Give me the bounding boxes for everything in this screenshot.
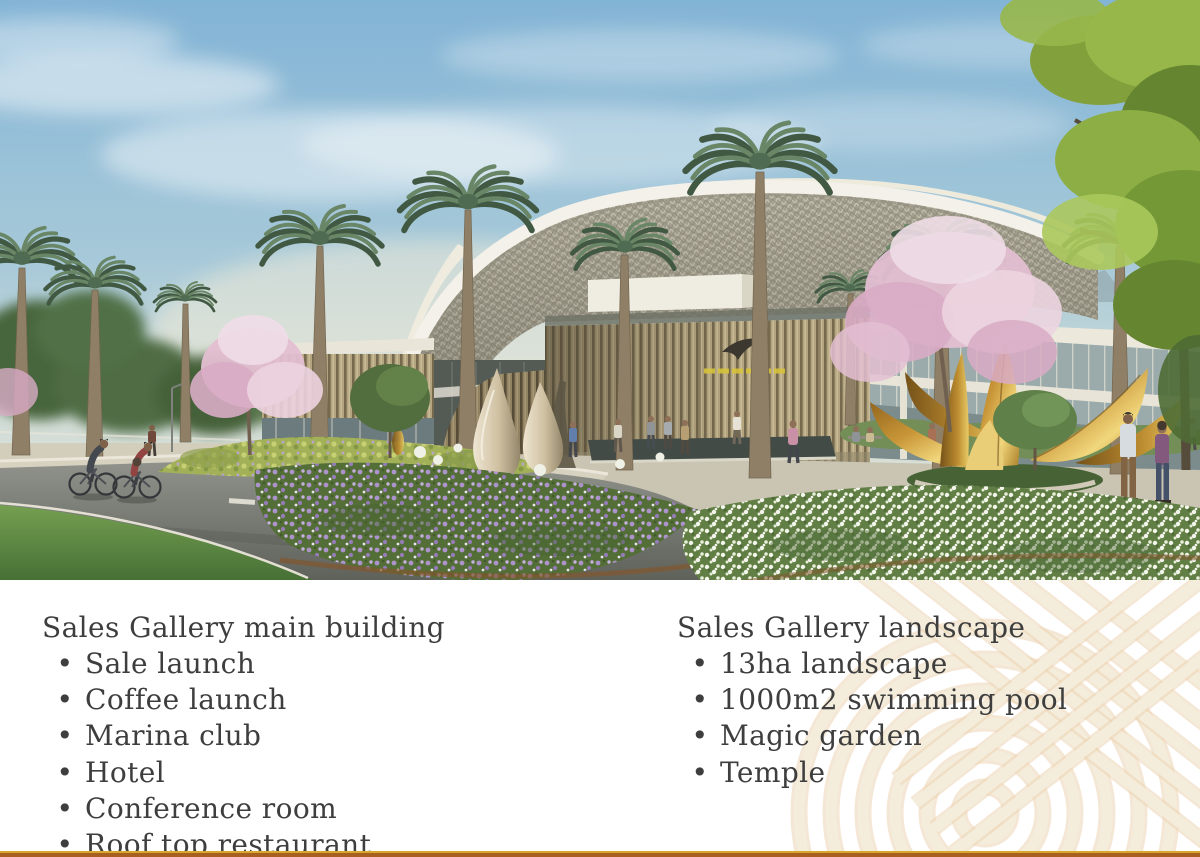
list-item-label: Magic garden [720,718,922,754]
bullet-marker: • [55,682,75,718]
right-column-list: •13ha landscape •1000m2 swimming pool •M… [677,646,1067,791]
bullet-marker: • [690,718,710,754]
list-item: •Magic garden [677,718,1067,754]
left-column-heading: Sales Gallery main building [42,610,445,646]
list-item-label: Sale launch [85,646,255,682]
accent-bar [0,851,1200,857]
list-item: •Sale launch [42,646,445,682]
list-item-label: Marina club [85,718,261,754]
left-column-list: •Sale launch •Coffee launch •Marina club… [42,646,445,857]
bullet-marker: • [690,646,710,682]
list-item: •1000m2 swimming pool [677,682,1067,718]
list-item: •Coffee launch [42,682,445,718]
feature-lists: Sales Gallery main building •Sale launch… [0,580,1200,857]
list-item: •Temple [677,755,1067,791]
bullet-marker: • [690,755,710,791]
warm-overlay [0,0,1200,580]
hero-rendering-svg [0,0,1200,580]
list-item-label: 1000m2 swimming pool [720,682,1067,718]
right-column-heading: Sales Gallery landscape [677,610,1067,646]
bullet-marker: • [55,646,75,682]
list-item: •Conference room [42,791,445,827]
left-column: Sales Gallery main building •Sale launch… [42,610,445,857]
list-item-label: 13ha landscape [720,646,948,682]
list-item-label: Hotel [85,755,165,791]
list-item-label: Coffee launch [85,682,287,718]
list-item: •Marina club [42,718,445,754]
list-item: •Hotel [42,755,445,791]
brochure-slide: Sales Gallery main building •Sale launch… [0,0,1200,857]
list-item-label: Conference room [85,791,337,827]
right-column: Sales Gallery landscape •13ha landscape … [677,610,1067,791]
list-item-label: Temple [720,755,825,791]
bullet-marker: • [690,682,710,718]
list-item: •13ha landscape [677,646,1067,682]
bullet-marker: • [55,791,75,827]
bullet-marker: • [55,718,75,754]
hero-rendering [0,0,1200,580]
bullet-marker: • [55,755,75,791]
